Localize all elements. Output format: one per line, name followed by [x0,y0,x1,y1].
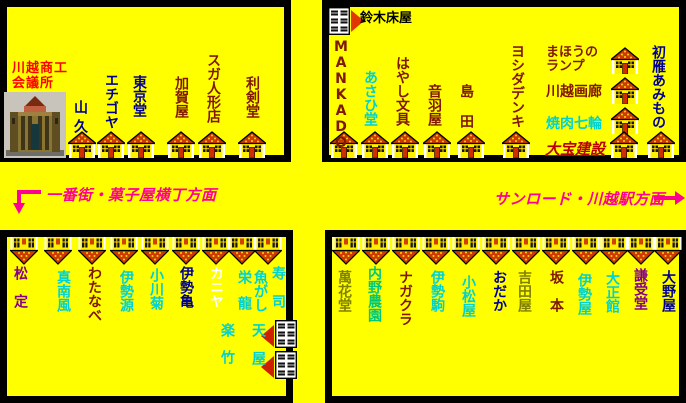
storefront-icon [275,320,297,348]
shop-label[interactable]: 天屋 [251,323,265,379]
house-icon [172,237,200,265]
shop-label[interactable]: 加賀屋 [174,76,188,118]
house-icon [167,131,195,158]
shop-label[interactable]: スガ人形店 [206,53,220,123]
shop-label[interactable]: 音羽屋 [427,84,441,126]
shop-label[interactable]: 伊勢亀 [179,266,193,308]
house-icon [141,237,169,265]
shop-label[interactable]: おだか [492,270,506,312]
direction-label-east[interactable]: サンロード・川越駅方面 [494,188,665,209]
house-icon [361,131,389,158]
house-icon [482,237,510,265]
street-map: 山久エチゴヤ東京堂加賀屋スガ人形店利剣堂鈴木床屋MANKADOあさひ堂はやし文具… [0,0,686,403]
shop-label[interactable]: 坂本 [549,270,563,326]
house-icon [423,131,451,158]
house-icon [512,237,540,265]
shop-label[interactable]: 伊勢源 [119,270,133,312]
house-icon [127,131,155,158]
house-icon [600,237,628,265]
shop-label[interactable]: 魚がし [253,270,267,312]
house-icon [238,131,266,158]
shop-label[interactable]: ヨシダデンキ [510,44,524,128]
house-icon [254,237,282,265]
shop-label[interactable]: 真南風 [56,270,70,312]
house-icon [78,237,106,265]
house-icon [422,237,450,265]
shop-label[interactable]: 伊勢屋 [577,273,591,315]
shop-label[interactable]: 利剣堂 [245,76,259,118]
chamber-of-commerce-label: 川越商工 会議所 [12,62,68,92]
house-icon [391,131,419,158]
house-icon [110,237,138,265]
house-icon [542,237,570,265]
house-icon [647,131,675,158]
shop-label[interactable]: 謙受堂 [633,268,647,310]
shop-label[interactable]: 楽竹 [220,323,234,377]
house-icon [202,237,230,265]
shop-label[interactable]: 小松屋 [461,275,475,317]
house-icon [44,237,72,265]
east-street-arrow-icon[interactable] [652,190,686,206]
shop-label[interactable]: 東京堂 [132,75,146,117]
direction-label-west[interactable]: 一番街・菓子屋横丁方面 [46,184,217,205]
house-icon [611,77,639,104]
shop-label[interactable]: 栄龍 [237,270,251,322]
house-icon [611,47,639,74]
shop-label[interactable]: 伊勢駒 [430,270,444,312]
house-icon [627,237,655,265]
shop-label[interactable]: エチゴヤ [104,73,118,129]
shop-label[interactable]: 初雁あみもの [651,45,665,129]
chamber-label-line1: 川越商工 [12,62,68,77]
house-icon [228,237,256,265]
shop-label[interactable]: 大野屋 [661,270,675,312]
shop-label[interactable]: はやし文具 [395,56,409,126]
house-icon [10,237,38,265]
shop-label[interactable]: まほうの ランプ [546,46,598,75]
storefront-icon [328,7,350,35]
shop-label[interactable]: 大宝建設 [545,141,605,158]
house-icon [362,237,390,265]
chamber-building-image [4,92,66,158]
shop-label[interactable]: MANKADO [334,39,348,151]
shop-label[interactable]: 山久 [73,100,87,138]
house-icon [392,237,420,265]
shop-label[interactable]: あさひ堂 [363,70,377,126]
storefront-icon [275,351,297,379]
house-icon [332,237,360,265]
house-icon [452,237,480,265]
chamber-label-line2: 会議所 [12,77,68,92]
shop-label[interactable]: 焼肉七輪 [546,117,602,132]
shop-label[interactable]: 萬花堂 [337,270,351,312]
shop-label[interactable]: 島田 [459,84,473,144]
west-street-arrow-icon[interactable] [6,186,42,216]
shop-label[interactable]: 小川菊 [149,268,163,310]
house-icon [502,131,530,158]
house-icon [198,131,226,158]
shop-label[interactable]: 吉田屋 [517,270,531,312]
shop-label[interactable]: わたなべ [87,266,101,322]
shop-label[interactable]: 大正館 [605,271,619,313]
shop-label[interactable]: 松定 [13,266,27,322]
house-icon [572,237,600,265]
house-icon [611,107,639,134]
shop-label[interactable]: 寿司 [271,266,285,322]
shop-label[interactable]: カニヤ [209,266,223,308]
shop-label[interactable]: ナガクラ [398,270,412,326]
shop-label[interactable]: 鈴木床屋 [360,12,412,26]
shop-label[interactable]: 内野農園 [367,266,381,322]
house-icon [97,131,125,158]
house-icon [610,131,638,158]
shop-label[interactable]: 川越画廊 [546,85,602,100]
house-icon [654,237,682,265]
